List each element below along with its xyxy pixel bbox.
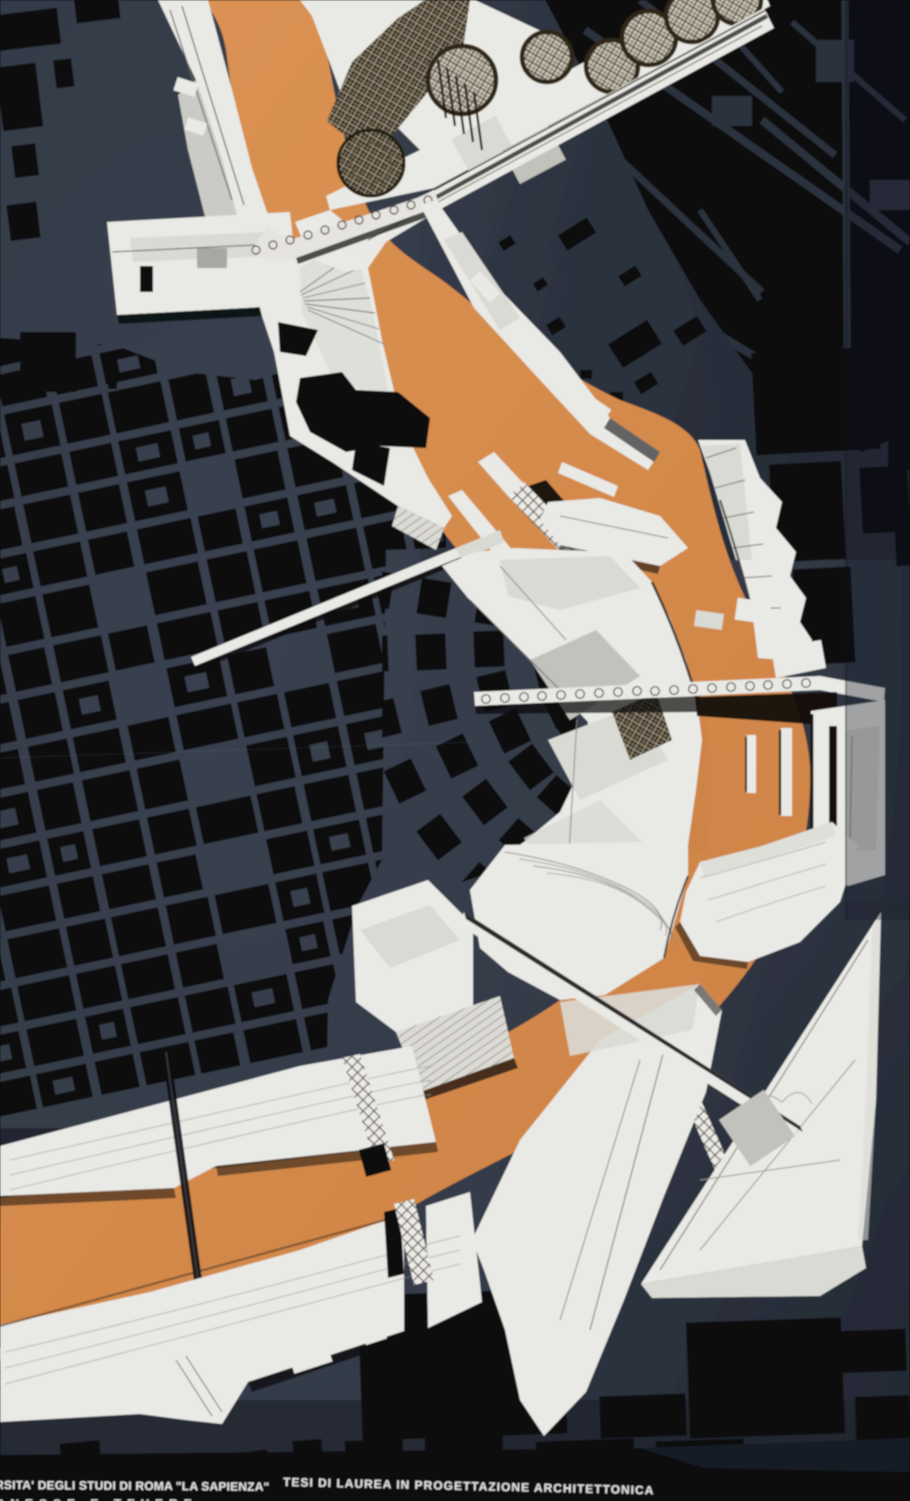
svg-text:GNESSE E TEVERE: GNESSE E TEVERE [0, 1497, 198, 1501]
svg-text:RSITA' DEGLI STUDI DI ROMA "LA: RSITA' DEGLI STUDI DI ROMA "LA SAPIENZA" [0, 1478, 270, 1494]
